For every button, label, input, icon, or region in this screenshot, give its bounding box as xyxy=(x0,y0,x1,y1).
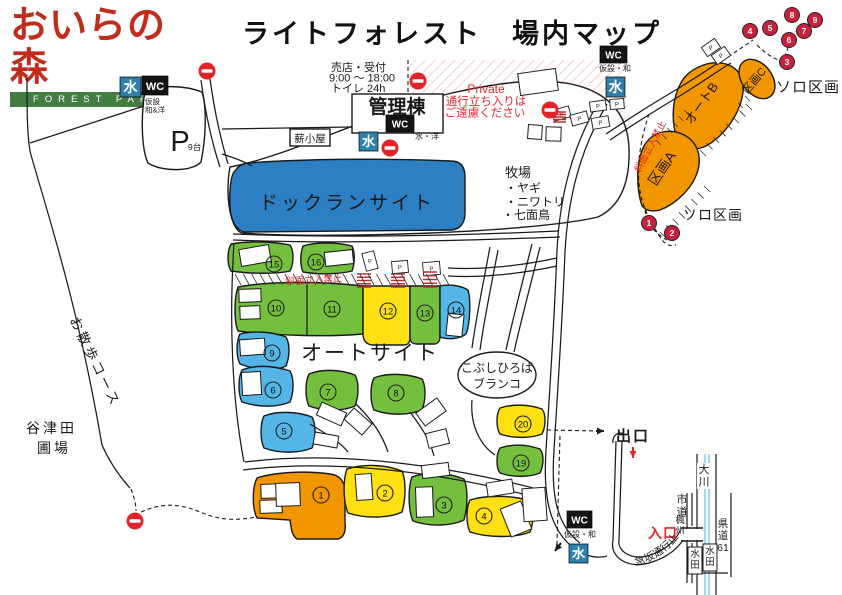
svg-text:4: 4 xyxy=(481,511,486,522)
svg-text:14: 14 xyxy=(451,305,462,316)
tent-pad xyxy=(276,483,301,507)
parking-space: P xyxy=(589,100,606,112)
no-entry-icon xyxy=(542,102,559,119)
solo-site-number-6: 6 xyxy=(782,33,797,48)
tent-pad xyxy=(415,487,433,518)
svg-text:3: 3 xyxy=(441,500,446,511)
parking-space: P xyxy=(392,260,409,273)
solo-site-number-7: 7 xyxy=(797,24,812,39)
inner-branch-b xyxy=(448,266,557,277)
shop-hours-3: トイレ 24h xyxy=(331,83,385,95)
site-5-area xyxy=(261,412,315,452)
solo-site-number-4: 4 xyxy=(743,24,758,39)
yatsuda-label: 谷津田 xyxy=(26,420,77,436)
tent-pad xyxy=(421,462,449,478)
svg-text:8: 8 xyxy=(790,10,795,20)
wc-icon-label: WC xyxy=(605,51,621,62)
svg-text:6: 6 xyxy=(270,385,275,396)
tent-pad xyxy=(355,473,373,500)
pasture-label: 牧場 xyxy=(505,165,531,180)
no-entry-icon xyxy=(199,63,216,80)
tent-pad xyxy=(240,306,260,320)
pasture-turkey: ・七面鳥 xyxy=(502,207,550,222)
wc-note-topright: 仮設・和 xyxy=(599,63,631,73)
private-note-3: ご遠慮ください xyxy=(445,106,526,120)
svg-text:5: 5 xyxy=(281,426,286,437)
no-entry-icon xyxy=(382,140,399,157)
wc-note-topleft-1: 仮設 xyxy=(145,96,160,106)
parking-p: P xyxy=(170,126,189,158)
solo-label-top: ソロ区画 xyxy=(776,79,840,96)
solo-trail-dash-2 xyxy=(728,40,753,57)
parking-count: 9台 xyxy=(188,142,201,152)
roadside-dash xyxy=(557,436,560,545)
exit-direction-arrow xyxy=(630,447,637,458)
water-icon-label: 水 xyxy=(124,79,139,95)
water-icon-label: 水 xyxy=(572,545,586,561)
svg-text:19: 19 xyxy=(516,458,527,469)
river-label: 大川 xyxy=(699,462,710,489)
wc-icon-label: WC xyxy=(571,516,587,527)
exit-label: 出口 xyxy=(616,427,650,445)
svg-text:9: 9 xyxy=(269,348,274,359)
wc-note-bottomright: 仮設・和 xyxy=(564,529,596,539)
svg-text:16: 16 xyxy=(311,257,322,268)
private-note-2: 通行立ち入りは xyxy=(446,94,527,108)
parking-space: P xyxy=(591,116,610,130)
solo-site-number-8: 8 xyxy=(785,8,800,23)
tent-pad xyxy=(313,432,339,448)
south-trail-dash-1 xyxy=(131,489,136,511)
svg-text:13: 13 xyxy=(420,308,431,319)
no-entry-icon xyxy=(127,513,144,530)
svg-text:3: 3 xyxy=(785,57,790,67)
tent-pad xyxy=(344,408,372,435)
bridge-label: 楓州 xyxy=(675,514,684,536)
parking-space: P xyxy=(422,261,440,275)
solo-trail-dash-3 xyxy=(757,45,782,61)
pasture-chicken: ・ニワトリ xyxy=(505,195,565,209)
pasture-goat: ・ヤギ xyxy=(505,181,541,195)
svg-text:20: 20 xyxy=(518,419,529,430)
svg-text:1: 1 xyxy=(647,218,652,228)
tent-pad xyxy=(528,125,543,140)
roadside-arrowhead xyxy=(552,543,562,553)
kobushi-plaza xyxy=(458,352,536,398)
kobushi-label-2: ブランコ xyxy=(473,376,521,391)
inner-loop-e xyxy=(472,400,495,455)
solo-site-number-5: 5 xyxy=(763,21,778,36)
svg-text:10: 10 xyxy=(271,303,282,314)
tent-pad xyxy=(324,250,353,267)
tent-pad xyxy=(241,372,261,396)
water-icon-label: 水 xyxy=(609,79,624,95)
paddy-label-2: 水田 xyxy=(705,545,715,568)
svg-text:2: 2 xyxy=(670,228,675,238)
parking-space-letter: P xyxy=(615,102,619,108)
tent-pad xyxy=(446,313,464,337)
parking-space: P xyxy=(362,251,378,271)
kobushi-label-1: こぶしひろば xyxy=(461,361,533,375)
no-entry-icon xyxy=(410,73,427,90)
parking-space: P xyxy=(610,99,625,110)
exit-guide-arrowhead xyxy=(596,428,604,435)
solo-site-number-2: 2 xyxy=(665,226,680,241)
svg-text:12: 12 xyxy=(383,306,394,317)
svg-text:7: 7 xyxy=(802,26,807,36)
wc-icon-label: WC xyxy=(146,81,164,93)
walk-course-label: お散歩コース xyxy=(67,315,124,410)
parking-space-letter: P xyxy=(398,265,403,271)
dogrun-label: ドックランサイト xyxy=(259,192,435,214)
solo-site-number-1: 1 xyxy=(642,216,657,231)
tent-pad xyxy=(518,68,559,95)
private-note-1: Private xyxy=(467,82,505,96)
wc-note-office: 水・洋 xyxy=(415,131,439,141)
svg-text:5: 5 xyxy=(768,23,773,33)
svg-text:1: 1 xyxy=(318,490,323,501)
pasture-road-b xyxy=(233,237,560,242)
site-2-area xyxy=(344,465,405,517)
tent-pad xyxy=(239,338,265,356)
south-trail-dash-2 xyxy=(141,505,256,519)
inner-loop-b xyxy=(480,250,498,350)
top-road xyxy=(222,127,352,129)
inner-branch-a xyxy=(448,258,557,269)
pref-road-label: 県道61 xyxy=(717,518,729,554)
svg-text:7: 7 xyxy=(325,387,330,398)
bridge-deck xyxy=(682,529,703,540)
water-icon-label: 水 xyxy=(362,133,376,149)
autosite-label: オートサイト xyxy=(301,342,439,365)
svg-text:15: 15 xyxy=(269,259,280,270)
svg-text:9: 9 xyxy=(813,15,818,25)
tent-pad xyxy=(486,479,514,497)
wc-note-topleft-2: 和&洋 xyxy=(145,105,166,115)
exit-track-b xyxy=(619,441,622,540)
campground-map: PPPPPPPPPP管理棟薪小屋水WC水WCWC水WC水仮設和&洋水・洋仮設・和… xyxy=(0,0,842,595)
site-map-page: おいらの森 FOREST PARK ライトフォレスト 場内マップ PPPPPPP… xyxy=(0,0,842,595)
tent-pad xyxy=(425,429,449,449)
site-7-area xyxy=(306,370,358,410)
tent-pad xyxy=(522,487,547,522)
solo-label-bottom: ソロ区画 xyxy=(683,207,743,223)
inner-loop-d xyxy=(506,244,532,350)
firewood-hut-label: 薪小屋 xyxy=(294,133,326,145)
tent-pad xyxy=(546,127,561,142)
exit-track-a xyxy=(613,441,616,540)
office-building-label: 管理棟 xyxy=(368,95,426,118)
paddy-label-1: 水田 xyxy=(690,548,700,571)
inner-loop-a xyxy=(472,247,490,348)
wc-icon-label: WC xyxy=(392,120,408,131)
hojo-label: 圃場 xyxy=(37,440,71,456)
entry-road-left-b xyxy=(210,79,228,164)
parking-space-letter: P xyxy=(596,104,601,111)
svg-text:6: 6 xyxy=(787,35,792,45)
solo-site-number-3: 3 xyxy=(780,55,795,70)
svg-text:11: 11 xyxy=(327,304,337,315)
tent-pad xyxy=(239,289,261,303)
svg-text:2: 2 xyxy=(382,488,387,499)
svg-text:4: 4 xyxy=(748,26,753,36)
left-diagonal xyxy=(30,106,144,143)
svg-text:8: 8 xyxy=(393,388,398,399)
solo-site-number-9: 9 xyxy=(808,13,823,28)
